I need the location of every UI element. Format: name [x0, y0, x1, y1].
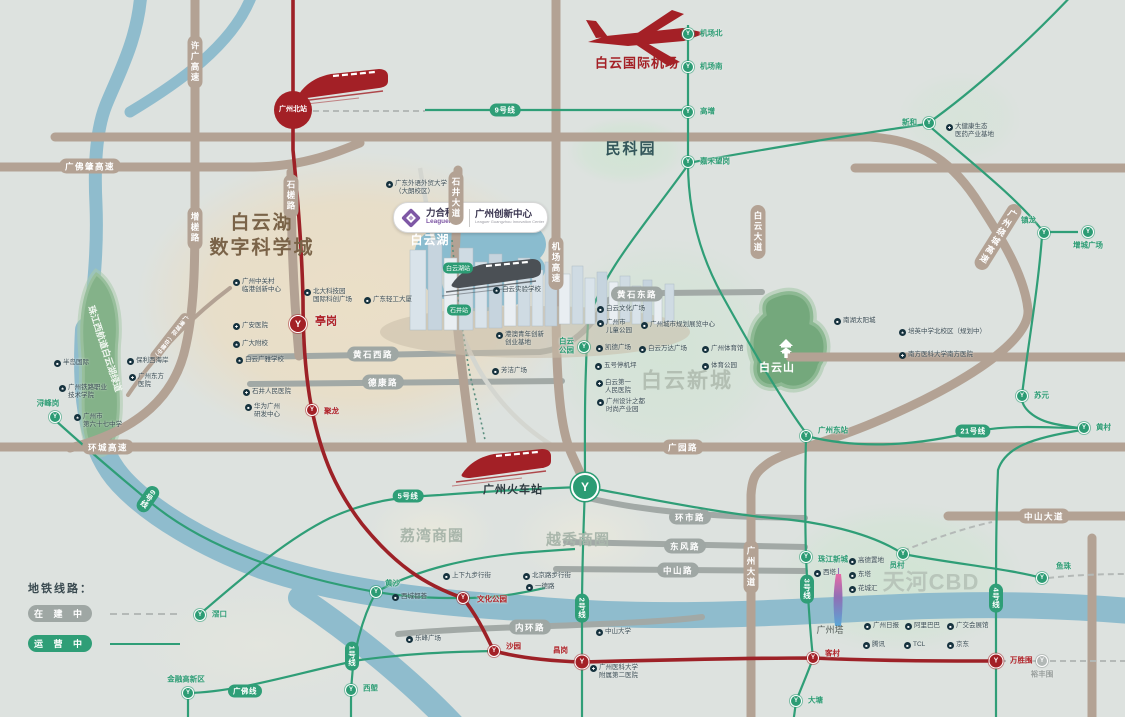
zone-label: 白云湖	[410, 233, 449, 249]
station-marker: Y	[194, 609, 206, 621]
project-logo-card: 力合科创 Leaguer 广州创新中心 Leaguer Guangzhou In…	[393, 202, 548, 233]
building-icon: ■	[641, 322, 648, 329]
poi: ✚石井人民医院	[243, 388, 291, 396]
poi: ✚南方医科大学南方医院	[899, 351, 973, 359]
hospital-icon: ✚	[243, 389, 250, 396]
station-marker: Y	[1036, 655, 1048, 667]
station-label: 聚龙	[324, 408, 339, 417]
station-capsule: 石井站	[447, 305, 471, 316]
zone-label: 荔湾商圈	[400, 526, 464, 546]
station-marker: Y	[682, 156, 694, 168]
zone-label: 白云山	[759, 361, 795, 375]
poi-label: TCL	[913, 641, 925, 649]
poi-label: 凯德广场	[605, 344, 631, 352]
poi-label: 培英中学北校区（规划中）	[908, 328, 986, 336]
poi-label: 广州东方 医院	[138, 373, 164, 389]
poi: ■高德置地	[849, 557, 884, 565]
metro-line-pill: 5号线	[393, 490, 424, 503]
station-label: 客村	[825, 650, 840, 659]
road-label: 中山路	[657, 563, 699, 578]
road-label: 黄石东路	[611, 287, 663, 302]
zone-label: 广州火车站	[483, 483, 543, 497]
building-icon: ■	[127, 358, 134, 365]
building-icon: ■	[526, 584, 533, 591]
building-icon: ■	[849, 586, 856, 593]
station-label: 广州东站	[818, 427, 848, 436]
building-icon: ■	[904, 642, 911, 649]
school-icon: ★	[386, 181, 393, 188]
road-label: 许广高速	[188, 35, 203, 89]
station-marker: Y	[289, 315, 307, 333]
poi-label: 白云实验学校	[502, 286, 541, 294]
school-icon: ★	[493, 287, 500, 294]
poi-label: 体育公园	[711, 362, 737, 370]
metro-line-pill: 2号线	[575, 594, 589, 623]
poi: ★广州市 第六十七中学	[74, 413, 122, 429]
poi-label: 广州日报	[873, 622, 899, 630]
road-label: 白云大道	[751, 205, 766, 259]
poi-label: 白云第一 人民医院	[605, 379, 631, 395]
zone-label: 越秀商圈	[546, 530, 610, 550]
station-label: 镇龙	[1021, 217, 1036, 226]
poi-label: 广州市 儿童公园	[606, 319, 632, 335]
station-marker: Y	[1082, 226, 1094, 238]
station-marker: Y	[682, 28, 694, 40]
hospital-icon: ✚	[233, 323, 240, 330]
metro-line-pill: 1号线	[345, 642, 359, 671]
station-marker: Y	[682, 106, 694, 118]
road-label: 广园路	[662, 440, 704, 455]
poi-label: 半岛国际	[63, 359, 89, 367]
poi: ■阿里巴巴	[905, 622, 940, 630]
poi-label: 白云广雅学校	[245, 356, 284, 364]
building-tower	[572, 266, 583, 324]
poi: ■港澳青年创新 创业基地	[496, 331, 544, 347]
poi: ■广州城市规划展览中心	[641, 321, 715, 329]
poi-label: 广安医院	[242, 322, 268, 330]
poi: ■广东轻工大厦	[364, 296, 412, 304]
poi-label: 中山大学	[605, 628, 631, 636]
poi: ■上下九步行街	[443, 572, 491, 580]
building-tower	[665, 284, 674, 322]
poi-label: 广东轻工大厦	[373, 296, 412, 304]
poi: ■五号停机坪	[595, 362, 637, 370]
poi: ■腾讯	[863, 641, 885, 649]
poi: ■广州中关村 临港创新中心	[233, 278, 281, 294]
building-icon: ■	[496, 332, 503, 339]
building-icon: ■	[863, 642, 870, 649]
poi-label: 芳洁广场	[501, 367, 527, 375]
zone-label: 天河CBD	[883, 569, 980, 598]
station-label: 嘉禾望岗	[700, 158, 730, 167]
poi-label: 阿里巴巴	[914, 622, 940, 630]
poi: ■北大科技园 国际科创广场	[304, 288, 352, 304]
poi: ✚大健康生态 医药产业基地	[946, 123, 994, 139]
poi: ★广东外语外贸大学 （大朗校区）	[386, 180, 447, 196]
station-marker: Y	[1016, 390, 1028, 402]
school-icon: ★	[74, 414, 81, 421]
zone-label: 白云湖 数字科学城	[209, 211, 314, 260]
poi: ■西塔	[814, 569, 836, 577]
station-label: 万胜围	[1010, 657, 1033, 666]
building-icon: ■	[245, 404, 252, 411]
legend: 地铁线路： 在 建 中 运 营 中	[28, 580, 208, 665]
poi: ■广州日报	[864, 622, 899, 630]
poi-label: 上下九步行街	[452, 572, 491, 580]
poi-label: 广州铁路职业 技术学院	[68, 384, 107, 400]
station-marker: Y	[897, 548, 909, 560]
station-marker: Y	[49, 411, 61, 423]
poi: ★白云实验学校	[493, 286, 541, 294]
map-canvas: 地铁线路： 在 建 中 运 营 中 力合科创 Leaguer 广州创新中心	[0, 0, 1125, 717]
poi-label: 广东外语外贸大学 （大朗校区）	[395, 180, 447, 196]
station-marker: Y	[575, 655, 590, 670]
leaguer-diamond-icon	[401, 208, 421, 228]
poi: ■华为广州 研发中心	[245, 403, 280, 419]
building-icon: ■	[406, 636, 413, 643]
station-capsule: 白云湖站	[443, 263, 473, 274]
station-marker: Y	[1036, 572, 1048, 584]
station-label: 苏元	[1034, 392, 1049, 401]
road-label: 机场高速	[549, 236, 564, 290]
station-marker: Y	[345, 684, 357, 696]
road-label: 广佛肇高速	[59, 159, 121, 174]
station-label: 裕丰围	[1031, 671, 1054, 680]
poi: ■TCL	[904, 641, 925, 649]
building-icon: ■	[54, 360, 61, 367]
station-label: 滘口	[212, 611, 227, 620]
poi-label: 南方医科大学南方医院	[908, 351, 973, 359]
poi-label: 广州医科大学 附属第二医院	[599, 664, 638, 680]
poi: ■白云万达广场	[639, 345, 687, 353]
metro-line-pill: 21号线	[955, 425, 990, 438]
poi-label: 京东	[956, 641, 969, 649]
zone-label: 白云新城	[641, 367, 733, 394]
building-icon: ■	[595, 363, 602, 370]
poi-label: 广州设计之都 时尚产业园	[606, 398, 645, 414]
poi: ■凯德广场	[596, 344, 631, 352]
road-label: 石槎路	[284, 174, 299, 218]
school-icon: ★	[899, 329, 906, 336]
station-marker: Y	[800, 551, 812, 563]
poi-label: 华为广州 研发中心	[254, 403, 280, 419]
metro-line-pill: 广佛线	[228, 685, 262, 698]
road-label: 黄石西路	[347, 347, 399, 362]
station-label: 黄沙	[385, 580, 400, 589]
poi-label: 一德路	[535, 583, 555, 591]
poi: ■南湖太阳城	[834, 317, 876, 325]
poi-label: 花城汇	[858, 585, 878, 593]
legend-title: 地铁线路：	[28, 580, 208, 596]
station-marker: Y	[790, 695, 802, 707]
poi-label: 西塔	[823, 569, 836, 577]
poi-label: 乐峰广场	[415, 635, 441, 643]
building-icon: ■	[597, 399, 604, 406]
station-marker: Y	[800, 430, 812, 442]
poi-label: 东塔	[858, 571, 871, 579]
station-marker-railway: Y	[571, 473, 599, 501]
project-name-en: Leaguer Guangzhou Innovation Center	[475, 220, 544, 224]
poi-label: 广州中关村 临港创新中心	[242, 278, 281, 294]
poi-label: 西城都荟	[401, 593, 427, 601]
poi: ■一德路	[526, 583, 555, 591]
hospital-icon: ✚	[596, 380, 603, 387]
zone-label: 广州塔	[816, 625, 843, 637]
building-icon: ■	[864, 623, 871, 630]
station-label: 文化公园	[477, 596, 507, 605]
hospital-icon: ✚	[590, 665, 597, 672]
station-marker: Y	[370, 586, 382, 598]
building-icon: ■	[233, 279, 240, 286]
road-label: 环市路	[669, 510, 711, 525]
poi: ★白云广雅学校	[236, 356, 284, 364]
station-marker: Y	[1078, 422, 1090, 434]
poi: ✚广州医科大学 附属第二医院	[590, 664, 638, 680]
poi: ■北京路步行街	[523, 572, 571, 580]
station-label: 昌岗	[553, 647, 568, 656]
station-marker: Y	[923, 117, 935, 129]
poi: ■芳洁广场	[492, 367, 527, 375]
poi-label: 大健康生态 医药产业基地	[955, 123, 994, 139]
station-marker: Y	[807, 652, 819, 664]
poi-label: 白云万达广场	[648, 345, 687, 353]
poi-label: 南湖太阳城	[843, 317, 876, 325]
poi-label: 广大附校	[242, 340, 268, 348]
road-label: 德康路	[362, 375, 404, 390]
legend-under-construction-badge: 在 建 中	[28, 605, 92, 622]
station-marker: Y	[457, 592, 469, 604]
road-label: 中山大道	[1018, 509, 1070, 524]
building-tower	[597, 272, 607, 324]
building-icon: ■	[702, 363, 709, 370]
poi: ■保利西海岸	[127, 357, 169, 365]
station-label: 珠江新城	[818, 556, 848, 565]
poi: ★培英中学北校区（规划中）	[899, 328, 986, 336]
station-marker: Y	[1038, 227, 1050, 239]
building-tower	[428, 240, 442, 330]
station-marker: Y	[578, 341, 590, 353]
building-icon: ■	[849, 558, 856, 565]
road-label: 广州大道	[744, 540, 759, 594]
zone-label: 民科园	[605, 139, 656, 159]
station-label: 鱼珠	[1056, 563, 1071, 572]
building-icon: ■	[443, 573, 450, 580]
station-label: 金融高新区	[167, 676, 205, 685]
poi-label: 广州城市规划展览中心	[650, 321, 715, 329]
school-icon: ★	[59, 385, 66, 392]
poi: ■广交会展馆	[947, 622, 989, 630]
station-label: 浔峰岗	[37, 400, 60, 409]
station-label: 亭岗	[315, 316, 337, 329]
poi: ■东塔	[849, 571, 871, 579]
metro-line-pill: 9号线	[490, 104, 521, 117]
hospital-icon: ✚	[946, 124, 953, 131]
building-tower	[532, 270, 543, 326]
building-icon: ■	[947, 623, 954, 630]
building-icon: ■	[639, 346, 646, 353]
station-marker: Y	[682, 61, 694, 73]
hospital-icon: ✚	[129, 374, 136, 381]
poi: ■花城汇	[849, 585, 878, 593]
poi: ■体育公园	[702, 362, 737, 370]
poi-label: 高德置地	[858, 557, 884, 565]
hospital-icon: ✚	[899, 352, 906, 359]
station-label: 黄村	[1096, 424, 1111, 433]
poi: ✚广州东方 医院	[129, 373, 164, 389]
road-label: 内环路	[509, 620, 551, 635]
poi: ★广州铁路职业 技术学院	[59, 384, 107, 400]
station-badge-interchange: 广州北站	[274, 91, 312, 129]
building-icon: ■	[364, 297, 371, 304]
poi: ■白云文化广场	[597, 305, 645, 313]
poi-label: 北大科技园 国际科创广场	[313, 288, 352, 304]
school-icon: ★	[236, 357, 243, 364]
zone-label: 白云国际机场	[595, 56, 679, 73]
poi-label: 广州体育馆	[711, 345, 744, 353]
poi-label: 广交会展馆	[956, 622, 989, 630]
building-icon: ■	[392, 594, 399, 601]
poi: ✚广安医院	[233, 322, 268, 330]
road-label: 石井大道	[449, 171, 464, 225]
poi-label: 石井人民医院	[252, 388, 291, 396]
building-icon: ■	[834, 318, 841, 325]
building-icon: ■	[849, 572, 856, 579]
building-icon: ■	[597, 320, 604, 327]
road-label: 东风路	[664, 539, 706, 554]
poi-label: 北京路步行街	[532, 572, 571, 580]
school-icon: ★	[233, 341, 240, 348]
road-label: 环城高速	[82, 440, 134, 455]
station-label: 员村	[890, 562, 905, 571]
building-icon: ■	[523, 573, 530, 580]
station-marker: Y	[488, 645, 500, 657]
station-marker: Y	[989, 654, 1004, 669]
poi-label: 五号停机坪	[604, 362, 637, 370]
poi: ■广州市 儿童公园	[597, 319, 632, 335]
school-icon: ★	[596, 629, 603, 636]
legend-solid-line-sample	[110, 641, 180, 647]
train-icon-railway-station	[452, 449, 551, 486]
poi: ★中山大学	[596, 628, 631, 636]
station-marker: Y	[306, 404, 318, 416]
building-icon: ■	[702, 346, 709, 353]
station-marker: Y	[182, 687, 194, 699]
poi: ✚白云第一 人民医院	[596, 379, 631, 395]
poi: ■广州体育馆	[702, 345, 744, 353]
legend-dashed-line-sample	[110, 611, 180, 617]
poi: ■西城都荟	[392, 593, 427, 601]
building-icon: ■	[492, 368, 499, 375]
metro-line-pill: 3号线	[800, 575, 814, 604]
station-label: 机场北	[700, 30, 723, 39]
poi: ★广大附校	[233, 340, 268, 348]
building-icon: ■	[304, 289, 311, 296]
road-label: 增槎路	[188, 206, 203, 250]
poi-label: 白云文化广场	[606, 305, 645, 313]
poi: ■京东	[947, 641, 969, 649]
legend-in-operation-badge: 运 营 中	[28, 635, 92, 652]
poi-label: 腾讯	[872, 641, 885, 649]
station-label: 机场南	[700, 63, 723, 72]
poi: ■广州设计之都 时尚产业园	[597, 398, 645, 414]
metro-line-pill: 4号线	[989, 584, 1003, 613]
building-icon: ■	[597, 306, 604, 313]
station-label: 沙园	[506, 643, 521, 652]
building-icon: ■	[947, 642, 954, 649]
station-label: 新和	[902, 119, 917, 128]
poi-label: 保利西海岸	[136, 357, 169, 365]
building-tower	[585, 278, 595, 324]
poi-label: 港澳青年创新 创业基地	[505, 331, 544, 347]
building-icon: ■	[814, 570, 821, 577]
poi-label: 广州市 第六十七中学	[83, 413, 122, 429]
station-label: 高增	[700, 108, 715, 117]
divider	[469, 209, 470, 227]
station-label: 西塱	[363, 685, 378, 694]
poi: ■半岛国际	[54, 359, 89, 367]
building-icon: ■	[905, 623, 912, 630]
station-label: 白云 公园	[559, 337, 574, 354]
building-icon: ■	[596, 345, 603, 352]
building-tower	[410, 250, 426, 330]
poi: ■乐峰广场	[406, 635, 441, 643]
station-label: 增城广场	[1073, 242, 1103, 251]
station-label: 大塘	[808, 697, 823, 706]
